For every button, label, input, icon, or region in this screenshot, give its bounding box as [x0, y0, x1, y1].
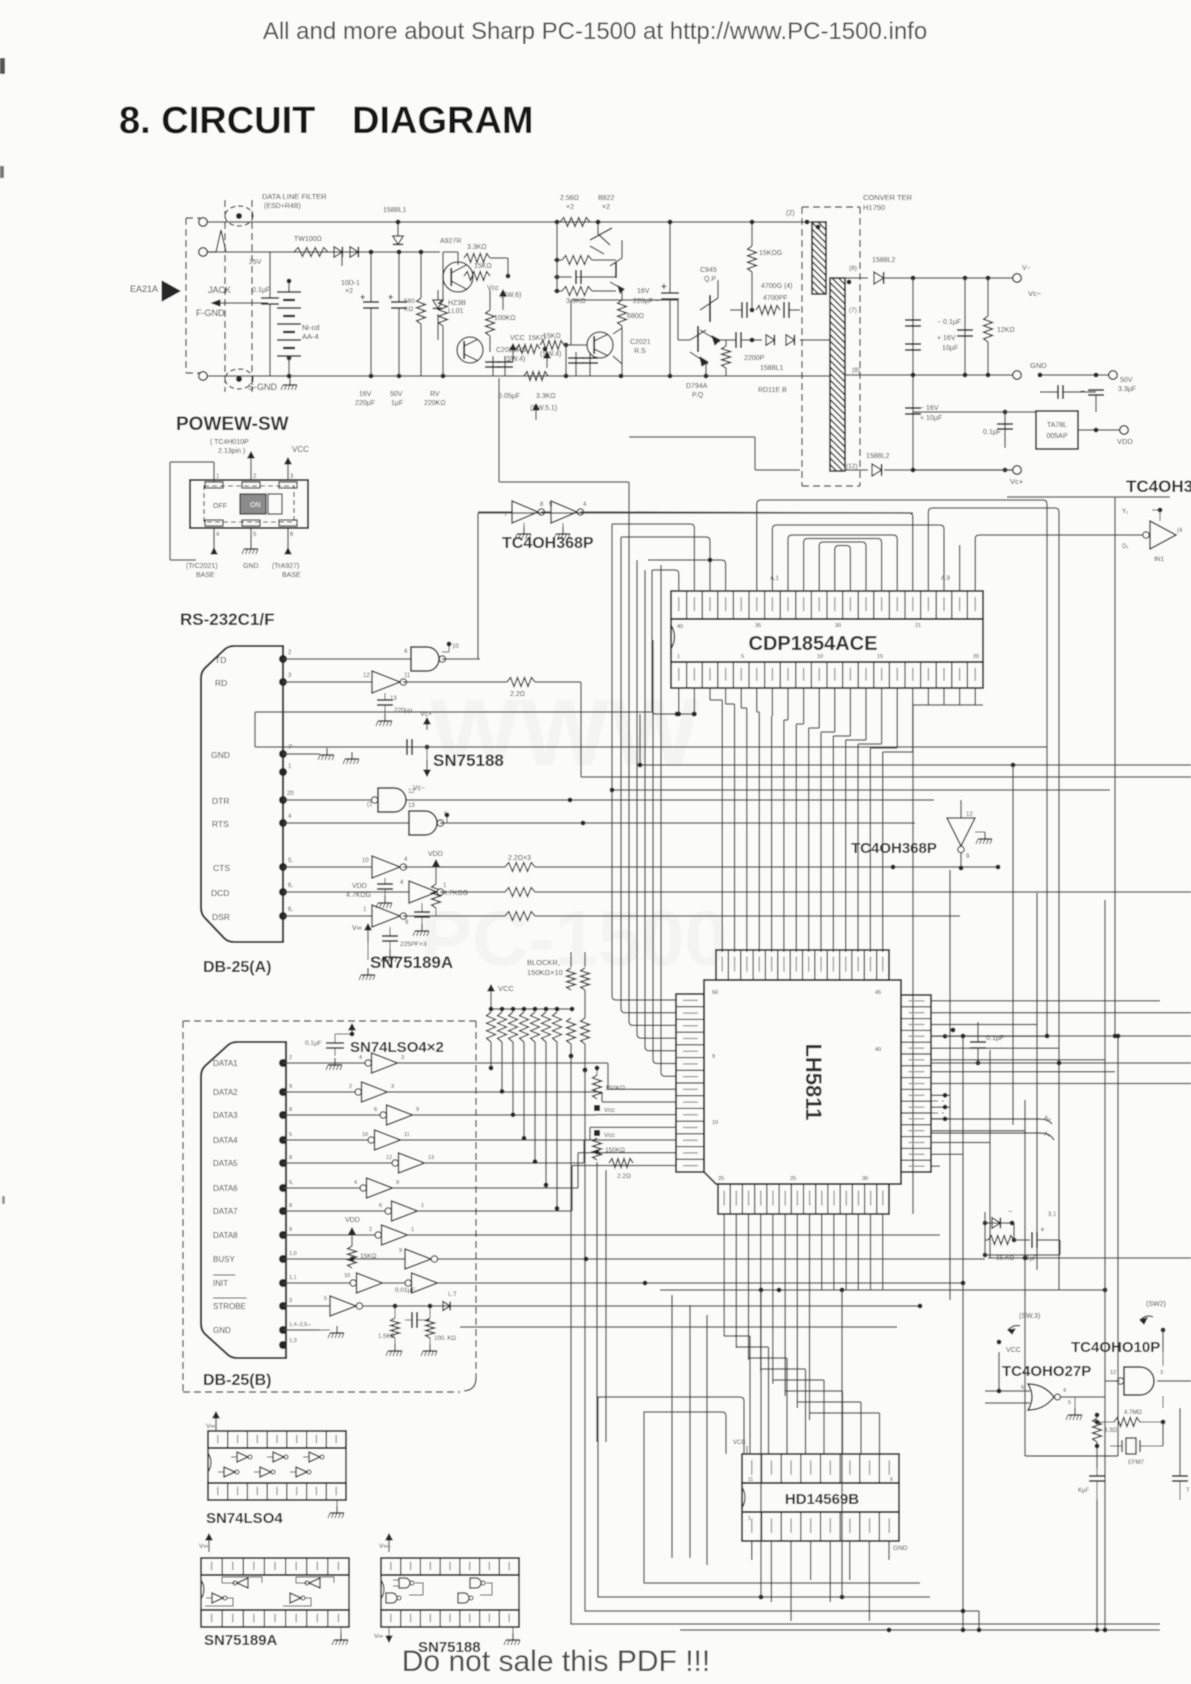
- svg-text:GND: GND: [1030, 361, 1047, 370]
- svg-text:RD11E B: RD11E B: [758, 387, 787, 394]
- svg-text:S-GND: S-GND: [248, 382, 278, 392]
- svg-text:CTS: CTS: [213, 863, 230, 873]
- svg-text:DIAGRAM: DIAGRAM: [352, 100, 534, 142]
- svg-text:SN74LSO4×2: SN74LSO4×2: [350, 1039, 444, 1056]
- svg-text:→: →: [305, 1321, 312, 1328]
- svg-text:A.1: A.1: [770, 576, 780, 582]
- svg-text:Y₁: Y₁: [1122, 509, 1128, 515]
- svg-text:(ESD+R4B): (ESD+R4B): [264, 203, 301, 210]
- svg-text:6,: 6,: [288, 883, 293, 889]
- svg-text:KΩ: KΩ: [404, 306, 413, 313]
- svg-text:15KΩ: 15KΩ: [543, 333, 561, 340]
- svg-text:×2: ×2: [566, 204, 574, 211]
- svg-text:12KΩ: 12KΩ: [997, 327, 1015, 334]
- svg-text:POWEW-SW: POWEW-SW: [176, 414, 289, 435]
- svg-text:3.3KΩ: 3.3KΩ: [566, 298, 586, 305]
- svg-text:1: 1: [421, 1203, 424, 1209]
- svg-text:9: 9: [289, 1227, 292, 1233]
- svg-text:Vcc: Vcc: [487, 285, 499, 292]
- svg-text:SN75189A: SN75189A: [370, 953, 453, 972]
- svg-text:1,0: 1,0: [289, 1251, 297, 1257]
- svg-text:RTS: RTS: [212, 819, 229, 829]
- svg-text:TC4OHO27P: TC4OHO27P: [1002, 1363, 1091, 1380]
- svg-text:Vcc: Vcc: [604, 1132, 616, 1139]
- svg-text:30: 30: [835, 623, 841, 629]
- svg-text:GND: GND: [893, 1545, 908, 1552]
- svg-text:SN75188: SN75188: [418, 1639, 481, 1656]
- svg-text:2.56Ω: 2.56Ω: [560, 195, 579, 202]
- svg-text:Q.P: Q.P: [704, 276, 716, 283]
- svg-text:L.T: L.T: [448, 1292, 457, 1298]
- svg-text:11: 11: [404, 1132, 410, 1138]
- svg-text:SN75189A: SN75189A: [204, 1632, 278, 1649]
- svg-text:100. KΩ: 100. KΩ: [434, 1336, 456, 1342]
- svg-text:2200P: 2200P: [744, 355, 765, 362]
- svg-text:RV: RV: [430, 391, 440, 398]
- svg-text:(7): (7): [849, 307, 857, 314]
- svg-text:V∞: V∞: [206, 1423, 215, 1430]
- svg-text:560: 560: [404, 298, 415, 305]
- svg-text:15KΩ: 15KΩ: [474, 263, 492, 270]
- svg-text:+: +: [661, 282, 667, 293]
- svg-text:8: 8: [289, 1203, 292, 1209]
- svg-text:H1750: H1750: [863, 203, 885, 212]
- svg-text:T: T: [1186, 1488, 1190, 1494]
- svg-text:220µF −: 220µF −: [633, 298, 659, 305]
- svg-text:9: 9: [890, 1477, 893, 1483]
- svg-text:13: 13: [408, 803, 415, 809]
- svg-text:5: 5: [289, 1132, 292, 1138]
- svg-text:20: 20: [287, 791, 294, 797]
- svg-text:BUSY: BUSY: [213, 1255, 235, 1264]
- svg-text:1: 1: [748, 1516, 751, 1522]
- svg-text:5,: 5,: [288, 858, 293, 864]
- svg-text:(TrC2021): (TrC2021): [186, 563, 218, 570]
- svg-text:2.13pin ): 2.13pin ): [218, 448, 245, 455]
- svg-text:(1: (1: [367, 802, 373, 808]
- svg-text:DATA5: DATA5: [213, 1159, 238, 1168]
- svg-text:DATA LINE FILTER: DATA LINE FILTER: [262, 192, 327, 201]
- svg-text:DATA6: DATA6: [213, 1184, 238, 1193]
- svg-text:HD14569B: HD14569B: [785, 1491, 859, 1508]
- svg-text:10: 10: [362, 1132, 368, 1138]
- svg-text:IN1: IN1: [1154, 556, 1165, 563]
- svg-text:5: 5: [1068, 1400, 1071, 1406]
- svg-text:(8): (8): [849, 265, 857, 272]
- svg-text:(SW.3): (SW.3): [1019, 1313, 1040, 1320]
- svg-text:VCC: VCC: [1006, 1347, 1021, 1354]
- svg-text:3.3KΩ: 3.3KΩ: [536, 393, 556, 400]
- svg-text:−: −: [1080, 386, 1085, 396]
- svg-text:10µF: 10µF: [942, 345, 958, 352]
- svg-text:RD: RD: [215, 678, 227, 688]
- svg-text:− 0.1µF: − 0.1µF: [937, 319, 961, 326]
- svg-text:5: 5: [741, 654, 744, 660]
- svg-text:20: 20: [973, 654, 979, 660]
- svg-text:10: 10: [712, 1120, 718, 1126]
- svg-text:9: 9: [289, 1084, 292, 1090]
- svg-text:VDD: VDD: [345, 1217, 360, 1224]
- svg-text:KµF: KµF: [1078, 1488, 1089, 1494]
- svg-text:220µµ: 220µµ: [394, 707, 413, 714]
- svg-text:(4: (4: [1177, 528, 1183, 534]
- svg-text:220KΩ: 220KΩ: [424, 400, 446, 407]
- svg-text:4: 4: [1063, 1388, 1066, 1394]
- svg-text:VCC: VCC: [292, 445, 309, 454]
- svg-text:VDD: VDD: [1117, 437, 1133, 446]
- svg-text:CONVER TER: CONVER TER: [863, 193, 913, 202]
- svg-text:40: 40: [677, 624, 683, 630]
- svg-text:9: 9: [396, 1180, 399, 1186]
- svg-text:DATA1: DATA1: [213, 1059, 238, 1068]
- svg-text:VCC: VCC: [498, 984, 514, 993]
- svg-text:OFF: OFF: [213, 503, 227, 510]
- svg-text:2: 2: [349, 1084, 352, 1090]
- svg-text:( TC4H010P: ( TC4H010P: [210, 439, 249, 446]
- svg-text:4700PF: 4700PF: [763, 295, 788, 302]
- svg-text:3: 3: [391, 1084, 394, 1090]
- svg-text:35: 35: [755, 623, 761, 629]
- svg-text:9: 9: [712, 1054, 715, 1060]
- svg-text:DTR: DTR: [212, 796, 229, 806]
- svg-text:40: 40: [875, 1047, 881, 1053]
- svg-text:×2: ×2: [602, 204, 610, 211]
- svg-text:DB-25(A): DB-25(A): [203, 959, 271, 976]
- svg-text:DATA8: DATA8: [213, 1231, 238, 1240]
- svg-text:V∞: V∞: [199, 1543, 208, 1550]
- svg-text:TD: TD: [215, 655, 226, 665]
- svg-text:P.Q: P.Q: [692, 392, 704, 399]
- svg-text:B822: B822: [598, 195, 614, 202]
- svg-text:Vc−: Vc−: [413, 785, 425, 792]
- svg-text:+ 10µF: + 10µF: [920, 415, 942, 422]
- svg-text:220µF: 220µF: [355, 400, 375, 407]
- svg-text:005AP: 005AP: [1046, 433, 1067, 440]
- svg-text:13: 13: [390, 696, 397, 702]
- svg-text:DB-25(B): DB-25(B): [203, 1372, 271, 1389]
- svg-text:1588L2: 1588L2: [872, 257, 895, 264]
- svg-text:1,3: 1,3: [289, 1338, 297, 1344]
- svg-text:VDD: VDD: [428, 851, 443, 858]
- svg-text:8: 8: [289, 1107, 292, 1113]
- svg-text:16V: 16V: [359, 391, 372, 398]
- svg-text:100KΩ: 100KΩ: [494, 315, 516, 322]
- svg-text:BASE: BASE: [196, 572, 215, 579]
- svg-text:LH5811: LH5811: [801, 1043, 826, 1120]
- svg-text:16V: 16V: [637, 288, 650, 295]
- svg-text:3.3KΩ: 3.3KΩ: [467, 244, 487, 251]
- svg-text:9: 9: [399, 1248, 402, 1254]
- svg-text:V∞: V∞: [374, 1633, 383, 1640]
- svg-text:×2: ×2: [345, 288, 353, 295]
- svg-text:150KΩ: 150KΩ: [605, 1147, 625, 1154]
- svg-text:1: 1: [411, 1227, 414, 1233]
- svg-text:25: 25: [718, 1176, 724, 1182]
- svg-text:INIT: INIT: [213, 1279, 228, 1288]
- svg-text:V−: V−: [1022, 265, 1031, 272]
- svg-text:DATA7: DATA7: [213, 1207, 238, 1216]
- svg-text:10: 10: [362, 858, 369, 864]
- svg-text:Vcc: Vcc: [604, 1107, 616, 1114]
- svg-text:A927R: A927R: [440, 238, 461, 245]
- svg-text:3.3Ω: 3.3Ω: [1104, 1428, 1117, 1434]
- svg-text:15KΩG: 15KΩG: [759, 250, 782, 257]
- svg-text:Vc+: Vc+: [1010, 477, 1024, 486]
- svg-text:(SW.4): (SW.4): [540, 351, 561, 358]
- svg-text:(2): (2): [786, 210, 795, 217]
- svg-text:DATA2: DATA2: [213, 1088, 238, 1097]
- svg-text:225PF×3: 225PF×3: [400, 941, 427, 948]
- svg-text:15: 15: [877, 654, 883, 660]
- svg-text:BASE: BASE: [282, 572, 301, 579]
- svg-text:− 16V: − 16V: [920, 405, 939, 412]
- svg-text:21: 21: [915, 623, 921, 629]
- svg-text:−: −: [1008, 1207, 1013, 1216]
- svg-text:BLOCKR,: BLOCKR,: [527, 958, 560, 967]
- svg-text:4700G (4): 4700G (4): [761, 283, 793, 290]
- svg-text:TC4OH368P: TC4OH368P: [502, 535, 594, 552]
- svg-text:DCD: DCD: [211, 888, 229, 898]
- svg-text:VDD: VDD: [352, 883, 367, 890]
- svg-text:DATA3: DATA3: [213, 1111, 238, 1120]
- svg-text:Vc−: Vc−: [1028, 289, 1042, 298]
- svg-text:0.1µF: 0.1µF: [252, 287, 270, 294]
- svg-text:11: 11: [404, 673, 411, 679]
- svg-text:8: 8: [289, 1155, 292, 1161]
- svg-text:3.3µF: 3.3µF: [1118, 386, 1136, 393]
- svg-text:1588L1: 1588L1: [383, 207, 406, 214]
- svg-text:13: 13: [428, 1155, 434, 1161]
- svg-text:TW100Ω: TW100Ω: [294, 236, 322, 243]
- svg-text:10: 10: [817, 654, 823, 660]
- svg-text:6: 6: [374, 1107, 377, 1113]
- svg-text:150KΩ×10: 150KΩ×10: [527, 968, 563, 977]
- svg-text:680Ω: 680Ω: [627, 313, 644, 320]
- svg-text:STROBE: STROBE: [213, 1302, 246, 1311]
- svg-text:0.1µF: 0.1µF: [983, 429, 1001, 436]
- svg-text:6: 6: [379, 1203, 382, 1209]
- svg-text:4: 4: [359, 1055, 362, 1061]
- svg-text:1.5KΩ: 1.5KΩ: [378, 1334, 395, 1340]
- svg-text:LL01: LL01: [448, 308, 464, 315]
- svg-text:(12): (12): [846, 463, 858, 470]
- svg-text:+: +: [388, 292, 393, 302]
- svg-text:F-GND: F-GND: [196, 308, 225, 318]
- svg-text:D₁: D₁: [1122, 544, 1128, 550]
- svg-text:6,: 6,: [288, 907, 293, 913]
- svg-text:EA21A: EA21A: [130, 284, 158, 294]
- svg-text:(TrA927): (TrA927): [272, 563, 299, 570]
- svg-text:10D-1: 10D-1: [341, 280, 360, 287]
- svg-text:11: 11: [748, 1477, 753, 1483]
- svg-text:(8): (8): [852, 367, 860, 374]
- svg-text:V∞: V∞: [352, 925, 362, 932]
- svg-text:4.7KΩG: 4.7KΩG: [346, 892, 371, 899]
- svg-text:0.1µF: 0.1µF: [305, 1040, 322, 1047]
- svg-text:4: 4: [354, 1180, 357, 1186]
- svg-text:3: 3: [1160, 1370, 1163, 1376]
- svg-text:10: 10: [452, 644, 459, 650]
- svg-text:25V: 25V: [249, 259, 262, 266]
- svg-text:+: +: [1040, 1225, 1045, 1234]
- svg-text:15KΩ: 15KΩ: [360, 1253, 377, 1260]
- svg-text:JACK: JACK: [208, 285, 231, 295]
- svg-text:+: +: [360, 292, 365, 302]
- svg-text:PC-1500: PC-1500: [420, 894, 728, 982]
- svg-text:DATA4: DATA4: [213, 1136, 238, 1145]
- svg-text:AA-4: AA-4: [302, 332, 319, 341]
- svg-text:V∞₋: V∞₋: [379, 1543, 392, 1550]
- svg-text:50V: 50V: [1120, 377, 1133, 384]
- svg-text:TC4OHO10P: TC4OHO10P: [1071, 1339, 1160, 1356]
- svg-text:10: 10: [344, 1273, 350, 1279]
- svg-text:1588L1: 1588L1: [760, 365, 783, 372]
- svg-text:HZ3B: HZ3B: [448, 300, 466, 307]
- svg-text:5,: 5,: [289, 1180, 294, 1186]
- svg-text:WWW: WWW: [430, 680, 699, 786]
- svg-text:GND: GND: [243, 563, 259, 570]
- svg-text:1,1: 1,1: [289, 1275, 297, 1281]
- svg-text:CDP1854ACE: CDP1854ACE: [749, 633, 878, 655]
- svg-text:2.2Ω: 2.2Ω: [510, 691, 525, 698]
- svg-text:1µF: 1µF: [391, 400, 403, 407]
- svg-text:8. CIRCUIT: 8. CIRCUIT: [119, 100, 315, 142]
- svg-text:C2021: C2021: [630, 339, 651, 346]
- svg-text:TA78L: TA78L: [1047, 422, 1067, 429]
- svg-text:Ni-cd: Ni-cd: [302, 323, 320, 332]
- svg-text:4.7KΩG: 4.7KΩG: [443, 890, 468, 897]
- svg-text:50: 50: [712, 990, 718, 996]
- svg-text:3: 3: [401, 1055, 404, 1061]
- svg-text:+ 16V: + 16V: [937, 335, 956, 342]
- svg-text:30: 30: [862, 1176, 868, 1182]
- svg-text:DSR: DSR: [212, 912, 230, 922]
- svg-text:A.9: A.9: [941, 576, 951, 582]
- svg-text:12: 12: [408, 789, 415, 795]
- svg-text:12: 12: [386, 1155, 392, 1161]
- svg-text:25: 25: [790, 1176, 796, 1182]
- svg-text:All and more about Sharp PC-15: All and more about Sharp PC-1500 at http…: [263, 18, 927, 45]
- svg-text:3: 3: [289, 1298, 292, 1304]
- svg-text:2.2Ω×3: 2.2Ω×3: [508, 855, 531, 862]
- svg-text:6: 6: [1021, 1385, 1024, 1391]
- svg-text:2: 2: [289, 1055, 292, 1061]
- svg-text:1588L2: 1588L2: [866, 453, 889, 460]
- svg-text:ON: ON: [250, 502, 261, 509]
- svg-text:2: 2: [369, 1227, 372, 1233]
- svg-text:TC4OH368P: TC4OH368P: [851, 840, 937, 857]
- svg-text:12: 12: [363, 673, 370, 679]
- svg-text:TC4OH3: TC4OH3: [1126, 477, 1191, 496]
- svg-text:R.S: R.S: [634, 348, 646, 355]
- svg-text:3.1: 3.1: [1048, 1212, 1057, 1218]
- svg-text:45: 45: [875, 990, 881, 996]
- svg-text:9: 9: [416, 1107, 419, 1113]
- svg-text:EFM7: EFM7: [1128, 1460, 1145, 1466]
- svg-text:12: 12: [1110, 1370, 1116, 1376]
- svg-text:GND: GND: [213, 1326, 231, 1335]
- svg-text:5: 5: [324, 1296, 327, 1302]
- svg-text:GND: GND: [211, 750, 230, 760]
- svg-text:0.01µF: 0.01µF: [395, 1287, 415, 1294]
- svg-text:150KΩ: 150KΩ: [605, 1085, 625, 1092]
- svg-text:2.2Ω: 2.2Ω: [617, 1173, 631, 1180]
- svg-text:12: 12: [966, 812, 973, 818]
- svg-text:C945: C945: [700, 267, 717, 274]
- svg-text:50V: 50V: [390, 391, 403, 398]
- svg-text:SN74LSO4: SN74LSO4: [206, 1510, 283, 1527]
- svg-text:7': 7': [288, 745, 292, 751]
- svg-text:SN75188: SN75188: [433, 751, 504, 770]
- svg-text:D794A: D794A: [686, 383, 708, 390]
- svg-text:RS-232C1/F: RS-232C1/F: [180, 610, 274, 629]
- svg-text:(SW2): (SW2): [1146, 1301, 1166, 1308]
- svg-text:VCC: VCC: [733, 1440, 746, 1446]
- svg-text:0.05µF: 0.05µF: [498, 393, 520, 400]
- svg-text:1: 1: [677, 654, 680, 660]
- svg-text:4.7MΩ: 4.7MΩ: [1124, 1410, 1142, 1416]
- svg-text:VCC: VCC: [510, 335, 525, 342]
